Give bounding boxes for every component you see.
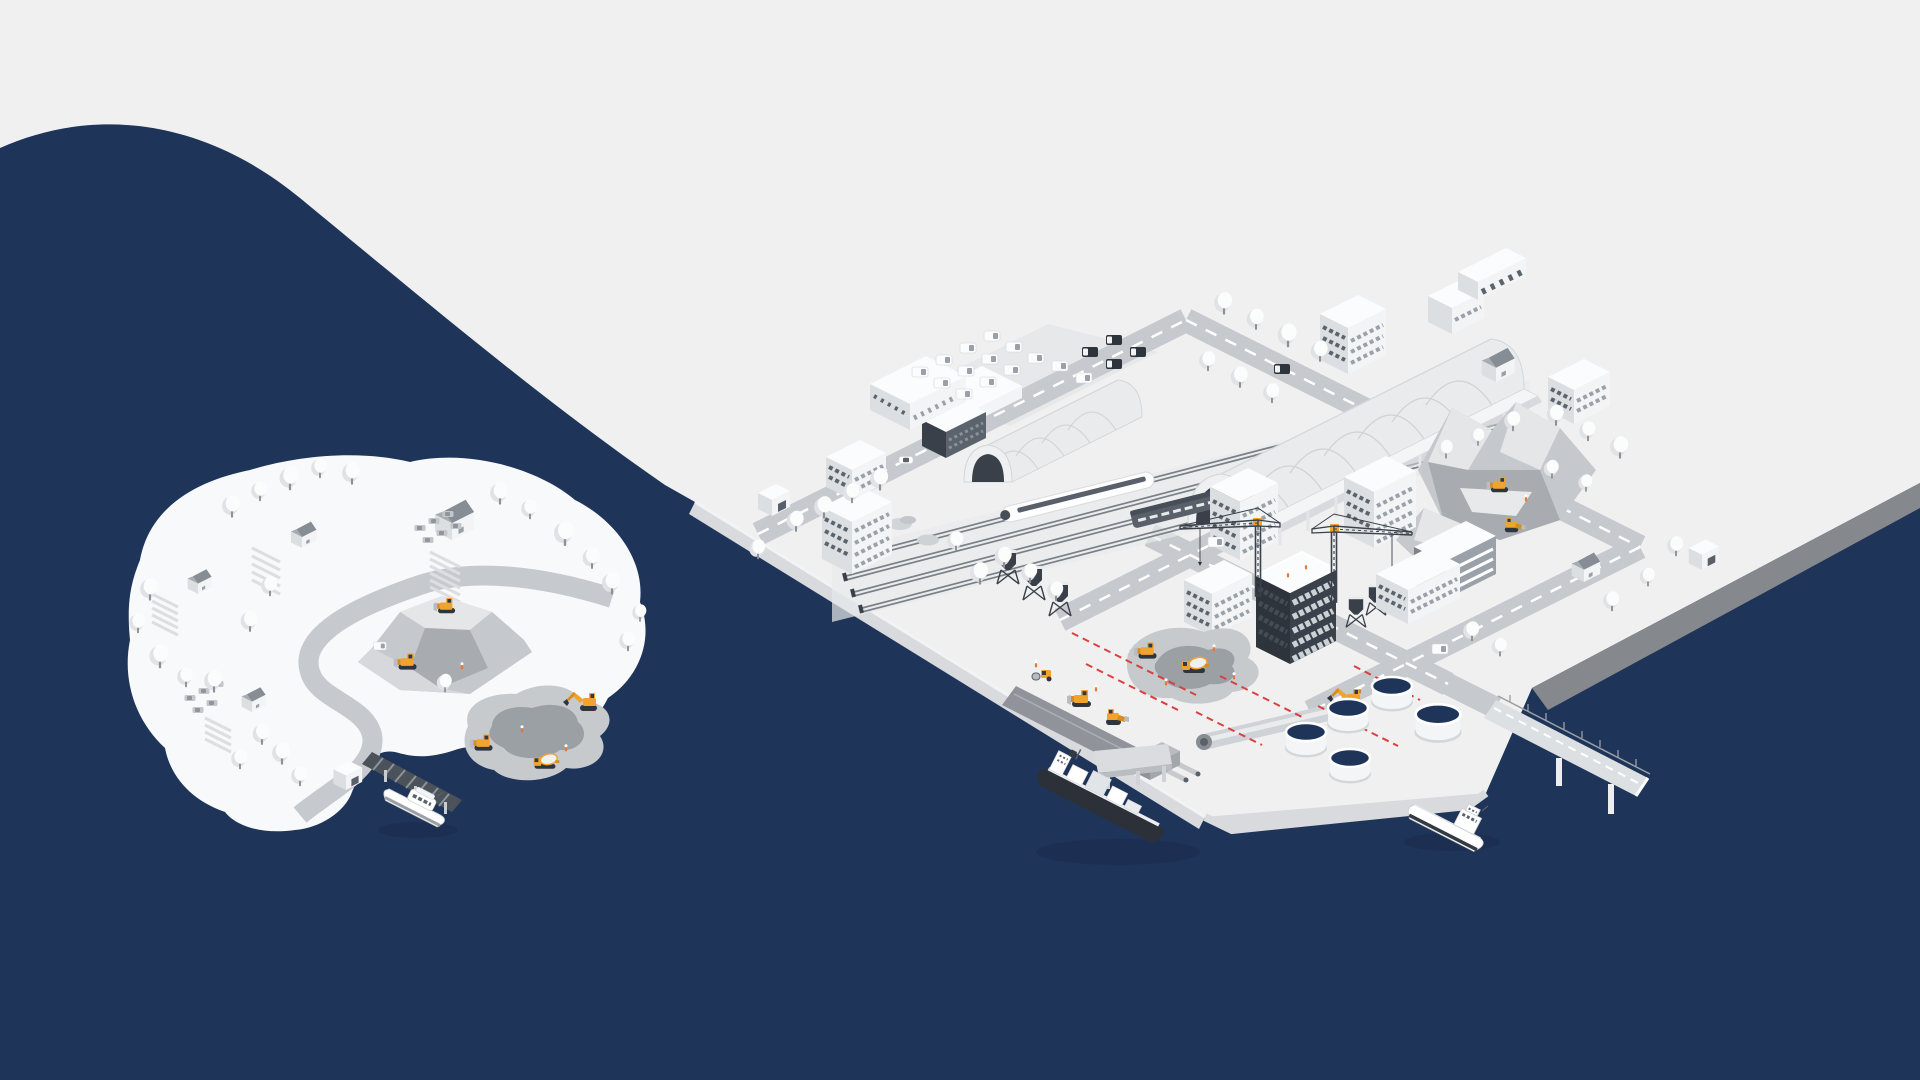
car <box>899 457 913 464</box>
ship-shadow <box>1036 839 1200 865</box>
worker <box>521 725 524 732</box>
worker <box>565 744 568 751</box>
van <box>1432 644 1448 654</box>
dark-van <box>1274 364 1290 374</box>
ferry-shadow <box>378 822 458 838</box>
worker <box>461 662 464 669</box>
small-truck <box>374 642 387 650</box>
worker <box>1305 562 1308 569</box>
van <box>1208 537 1224 547</box>
worker <box>1287 570 1290 577</box>
isometric-scene <box>0 0 1920 1080</box>
hero-illustration <box>0 0 1920 1080</box>
worker <box>1525 494 1528 501</box>
